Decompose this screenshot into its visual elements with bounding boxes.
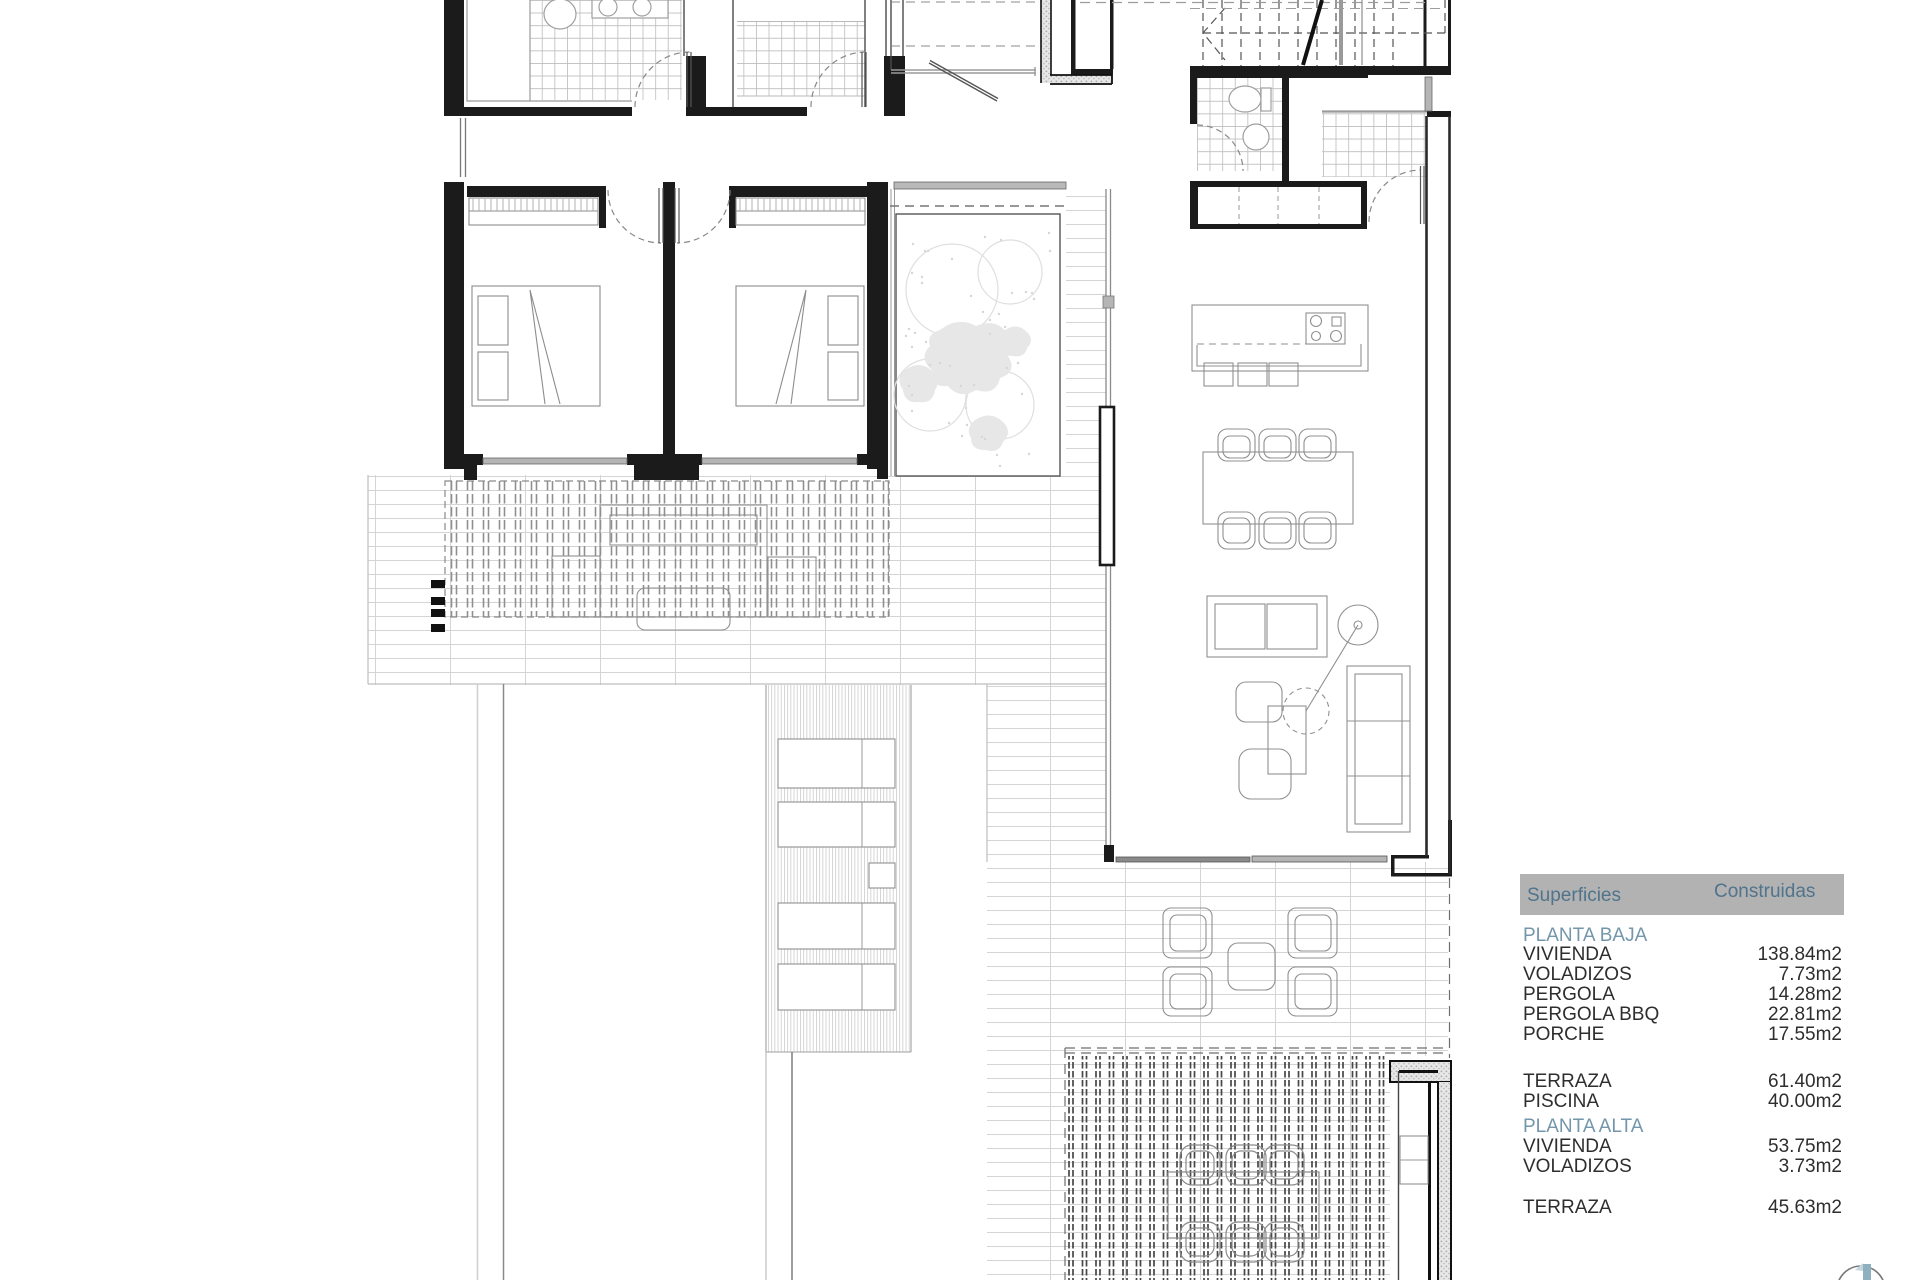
svg-text:138.84m2: 138.84m2 <box>1757 944 1842 965</box>
svg-text:Construidas: Construidas <box>1714 881 1815 902</box>
svg-text:PLANTA BAJA: PLANTA BAJA <box>1523 925 1648 946</box>
svg-text:61.40m2: 61.40m2 <box>1768 1071 1842 1092</box>
svg-text:PORCHE: PORCHE <box>1523 1024 1604 1045</box>
svg-text:Superficies: Superficies <box>1527 885 1621 906</box>
svg-text:22.81m2: 22.81m2 <box>1768 1004 1842 1025</box>
svg-text:3.73m2: 3.73m2 <box>1779 1156 1842 1177</box>
svg-text:VIVIENDA: VIVIENDA <box>1523 944 1612 965</box>
svg-text:VOLADIZOS: VOLADIZOS <box>1523 1156 1632 1177</box>
svg-text:45.63m2: 45.63m2 <box>1768 1197 1842 1218</box>
svg-text:PLANTA ALTA: PLANTA ALTA <box>1523 1116 1644 1137</box>
svg-text:53.75m2: 53.75m2 <box>1768 1136 1842 1157</box>
svg-text:VIVIENDA: VIVIENDA <box>1523 1136 1612 1157</box>
svg-text:VOLADIZOS: VOLADIZOS <box>1523 964 1632 985</box>
svg-text:TERRAZA: TERRAZA <box>1523 1197 1612 1218</box>
svg-text:PERGOLA: PERGOLA <box>1523 984 1615 1005</box>
svg-text:PERGOLA BBQ: PERGOLA BBQ <box>1523 1004 1659 1025</box>
svg-text:PISCINA: PISCINA <box>1523 1091 1599 1112</box>
svg-text:7.73m2: 7.73m2 <box>1779 964 1842 985</box>
svg-text:17.55m2: 17.55m2 <box>1768 1024 1842 1045</box>
svg-text:14.28m2: 14.28m2 <box>1768 984 1842 1005</box>
svg-text:40.00m2: 40.00m2 <box>1768 1091 1842 1112</box>
svg-text:TERRAZA: TERRAZA <box>1523 1071 1612 1092</box>
